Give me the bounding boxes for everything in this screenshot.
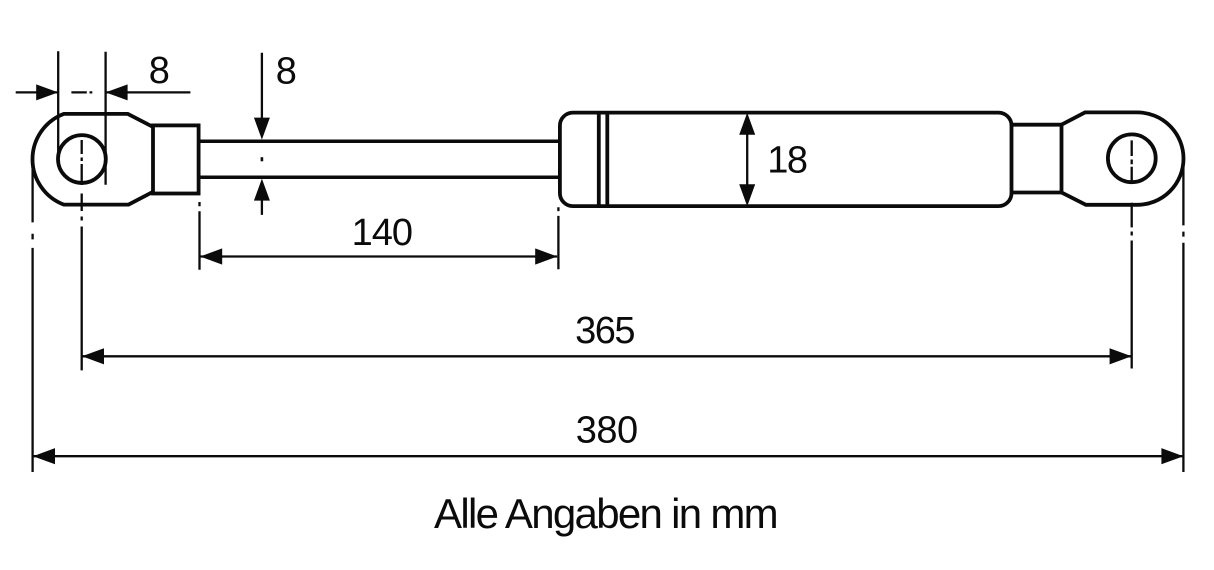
svg-text:380: 380 [576, 410, 638, 452]
svg-text:365: 365 [575, 310, 634, 352]
svg-text:8: 8 [149, 50, 170, 92]
svg-text:8: 8 [276, 51, 297, 93]
svg-text:140: 140 [352, 212, 412, 254]
svg-text:18: 18 [767, 140, 807, 182]
svg-text:Alle Angaben in mm: Alle Angaben in mm [434, 490, 777, 537]
